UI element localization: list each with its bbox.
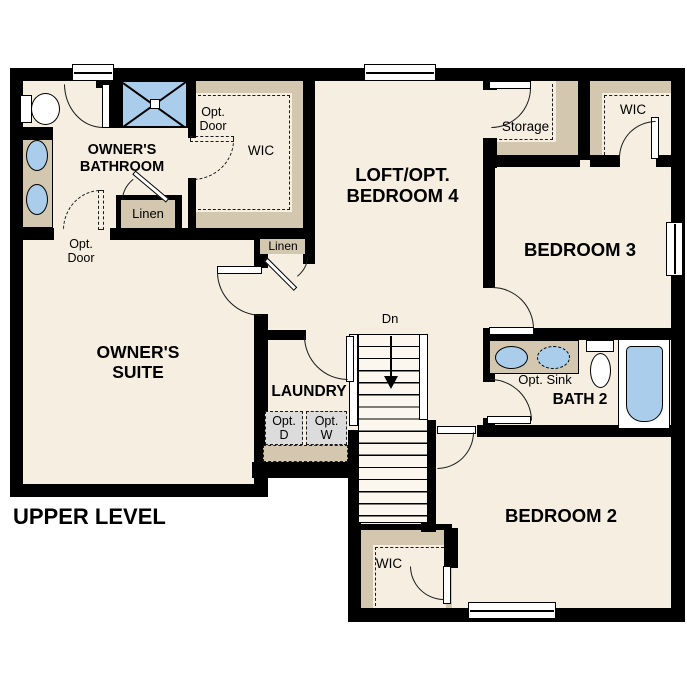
window-top-left-pane xyxy=(74,72,112,74)
opt-sink-icon-bath2 xyxy=(537,346,570,369)
window-top-center-pane xyxy=(366,72,434,74)
wall-storage-bottom xyxy=(483,155,580,167)
wic-bedroom2-door-leaf xyxy=(443,566,451,604)
stair-arrow-shaft xyxy=(390,336,392,378)
window-bedroom3-pane xyxy=(674,224,676,274)
closet-label-linen-hall: Linen xyxy=(262,239,304,254)
closet-label-wic-loft: WIC xyxy=(238,142,284,159)
closet-label-wic-bedroom2: WIC xyxy=(366,555,412,572)
wall-outer-right xyxy=(671,68,685,622)
room-label-bedroom3: BEDROOM 3 xyxy=(495,238,665,262)
room-label-owners-suite: OWNER'S SUITE xyxy=(68,338,208,386)
closet-label-wic-bedroom3: WIC xyxy=(610,101,656,118)
room-label-bedroom2: BEDROOM 2 xyxy=(475,504,647,528)
staircase xyxy=(358,334,428,523)
shower-drain xyxy=(150,99,160,109)
sink-icon-owners-1 xyxy=(26,140,48,171)
room-label-bath2: BATH 2 xyxy=(540,390,620,410)
wall-suite-bottom xyxy=(10,484,268,497)
sink-icon-bath2 xyxy=(495,346,528,369)
page-title: UPPER LEVEL xyxy=(13,503,193,531)
stair-rail-right xyxy=(419,334,428,420)
wall-storage-wic-divider xyxy=(578,80,590,160)
toilet-bowl-bath2 xyxy=(590,353,611,388)
wall-laundry-top xyxy=(254,330,306,340)
laundry-counter-strip xyxy=(263,445,348,462)
annotation-opt-door-wic: Opt. Door xyxy=(190,102,236,136)
room-label-loft: LOFT/OPT. BEDROOM 4 xyxy=(320,158,485,212)
annotation-opt-sink: Opt. Sink xyxy=(505,372,585,388)
closet-label-linen-bathroom: Linen xyxy=(124,205,172,223)
annotation-stairs-down: Dn xyxy=(376,311,404,327)
wall-wic-bd2-top xyxy=(361,524,452,530)
toilet-room-door-leaf xyxy=(102,84,110,128)
wall-bath-wic-lower xyxy=(188,178,196,232)
room-label-owners-bathroom: OWNER'S BATHROOM xyxy=(62,138,182,180)
wall-wic-bd2-east xyxy=(444,528,458,568)
bathtub-basin xyxy=(626,346,663,422)
wall-toilet-room-bottom xyxy=(10,127,53,140)
closet-label-storage: Storage xyxy=(488,118,563,136)
room-label-laundry: LAUNDRY xyxy=(262,382,356,402)
annotation-opt-washer: Opt. W xyxy=(306,411,347,445)
window-bedroom2-pane xyxy=(470,610,554,612)
annotation-opt-dryer: Opt. D xyxy=(265,411,303,445)
wall-wic-bd3-bottom-left xyxy=(590,155,620,167)
stair-arrow-head xyxy=(384,376,398,389)
annotation-opt-door-suite: Opt. Door xyxy=(56,234,106,268)
toilet-icon-bath2 xyxy=(586,340,614,352)
wall-laundry-bottom xyxy=(252,462,362,478)
shower-icon xyxy=(121,80,188,128)
wall-bathroom-suite-left xyxy=(10,228,54,240)
toilet-bowl-owners xyxy=(31,93,60,125)
floor-plan: UPPER LEVEL OWNER'S BATHROOM OWNER'S SUI… xyxy=(0,0,687,687)
sink-icon-owners-2 xyxy=(26,184,48,215)
